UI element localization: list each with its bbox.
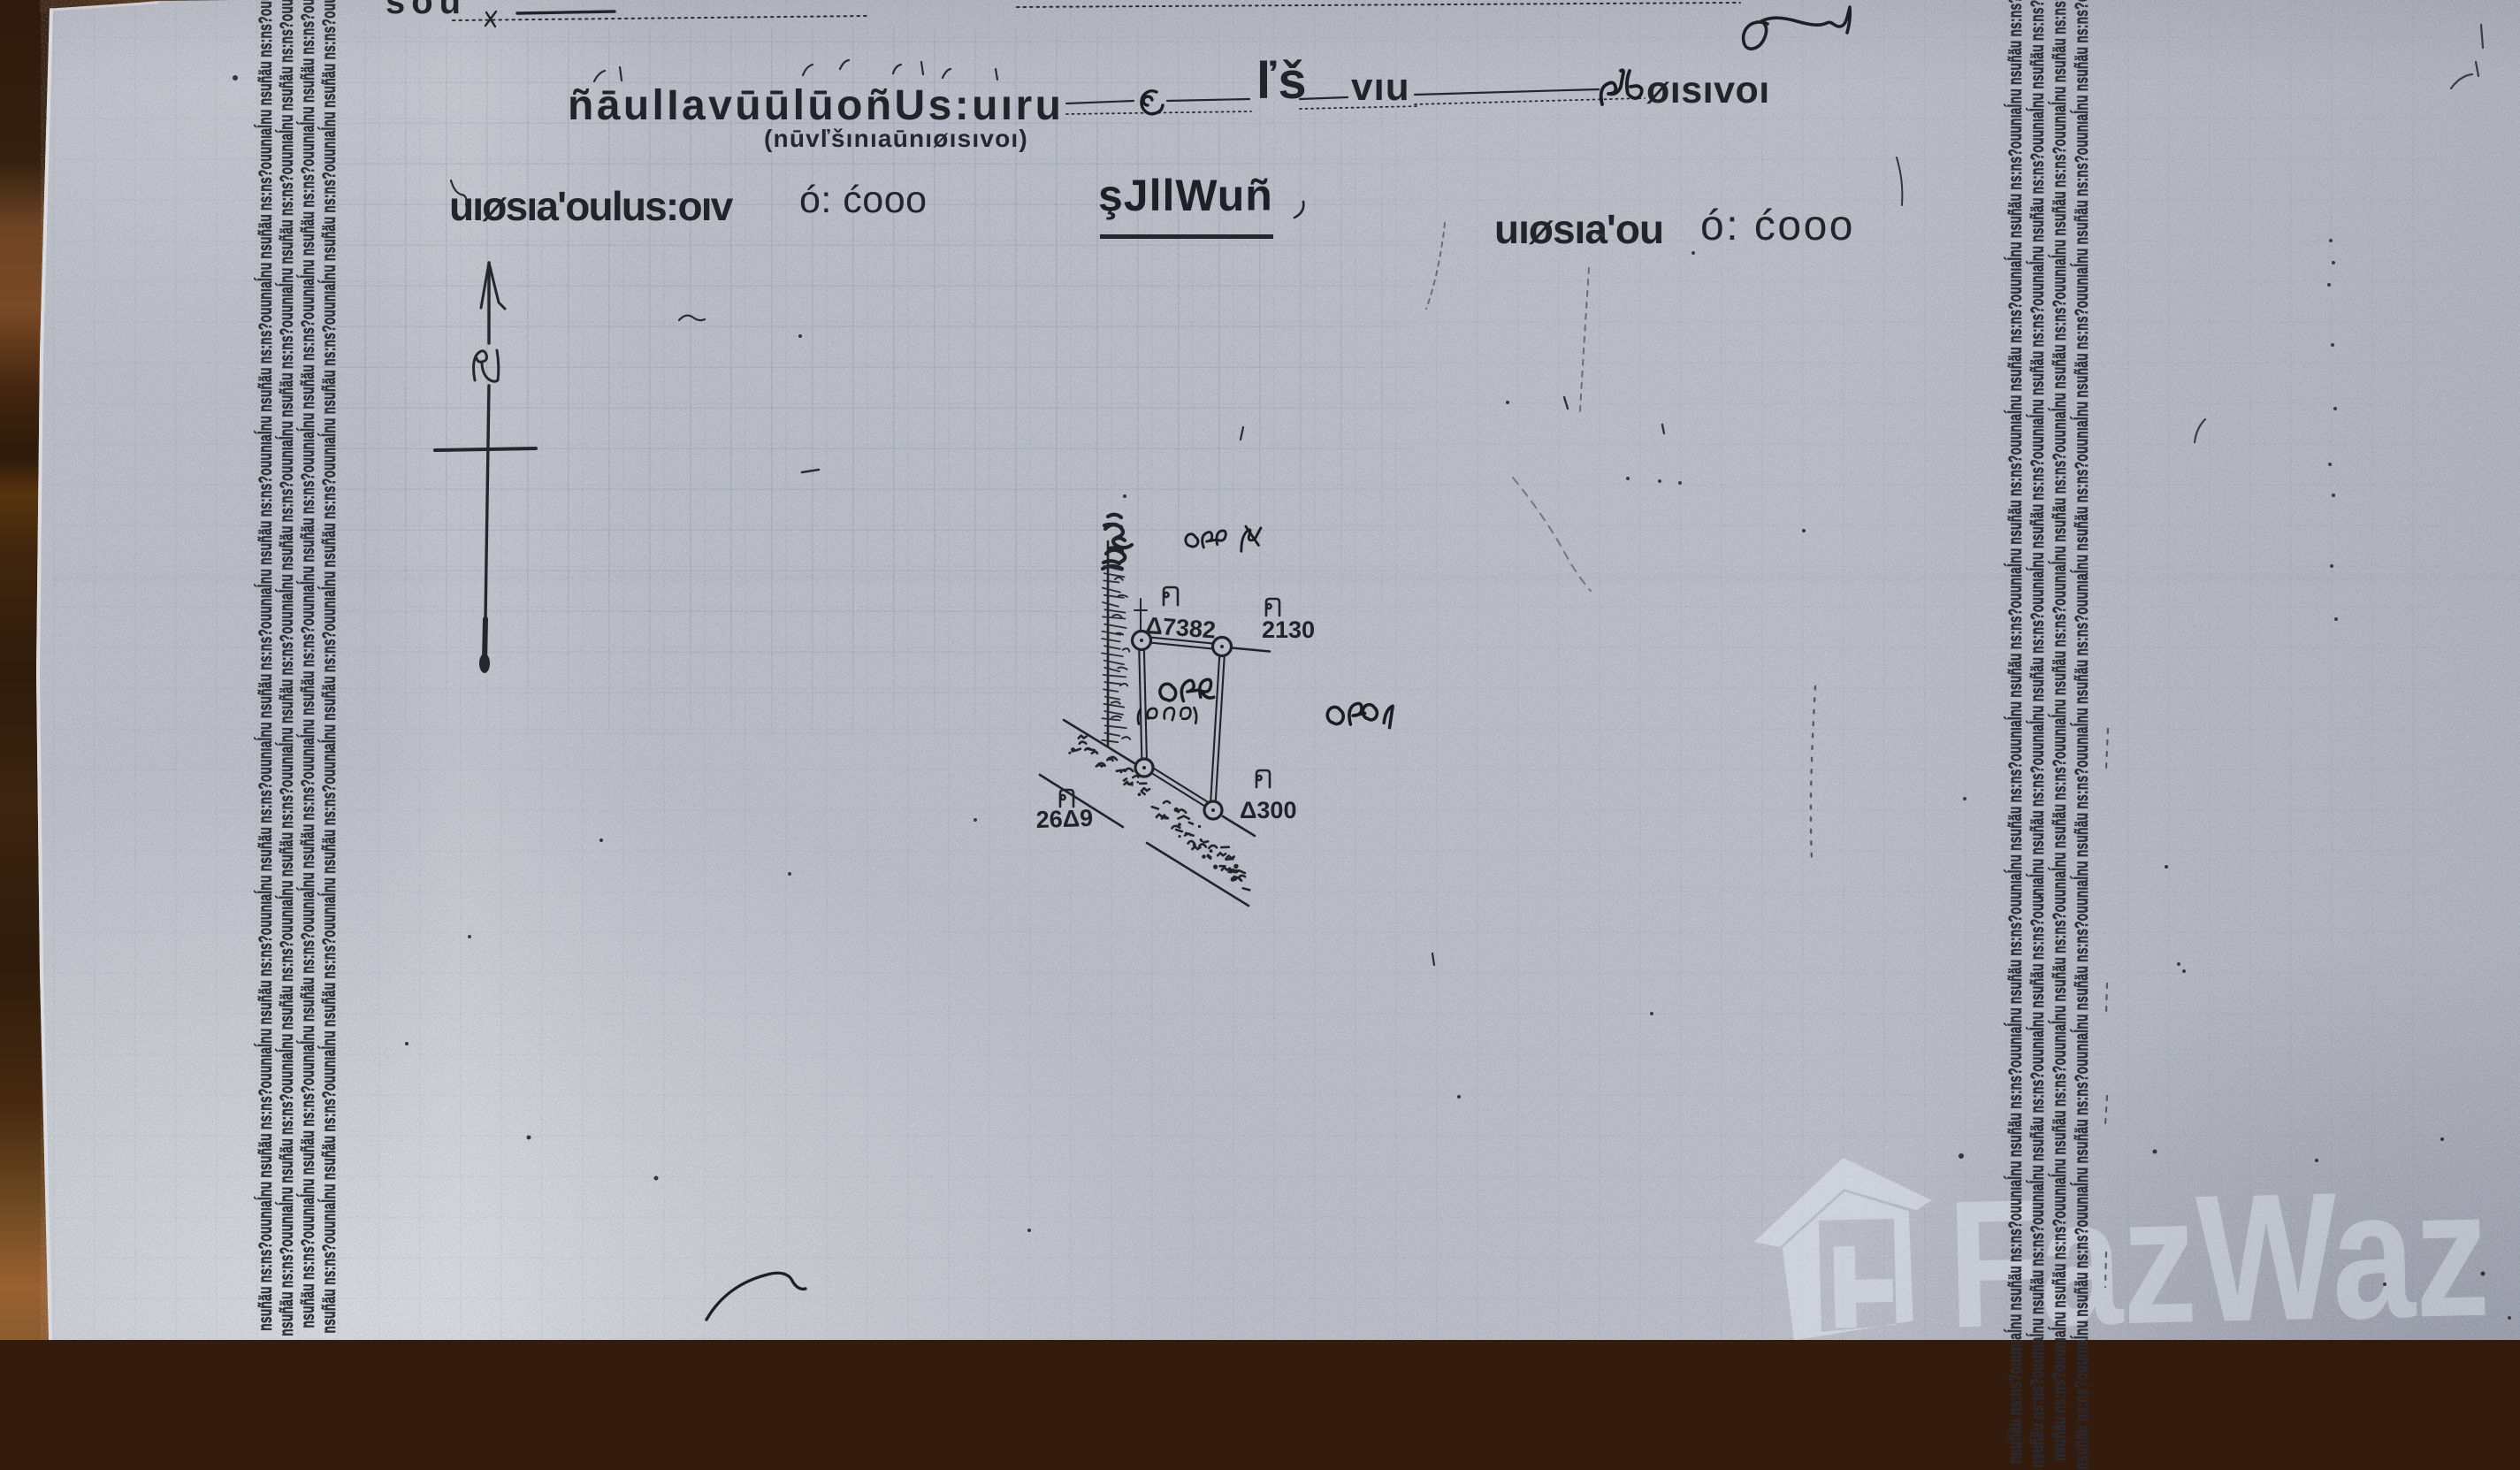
svg-text:26Δ9: 26Δ9 (1035, 805, 1093, 833)
svg-text:2130: 2130 (1262, 616, 1315, 643)
svg-text:Δ300: Δ300 (1240, 797, 1296, 823)
svg-text:Δ7382: Δ7382 (1145, 612, 1217, 643)
